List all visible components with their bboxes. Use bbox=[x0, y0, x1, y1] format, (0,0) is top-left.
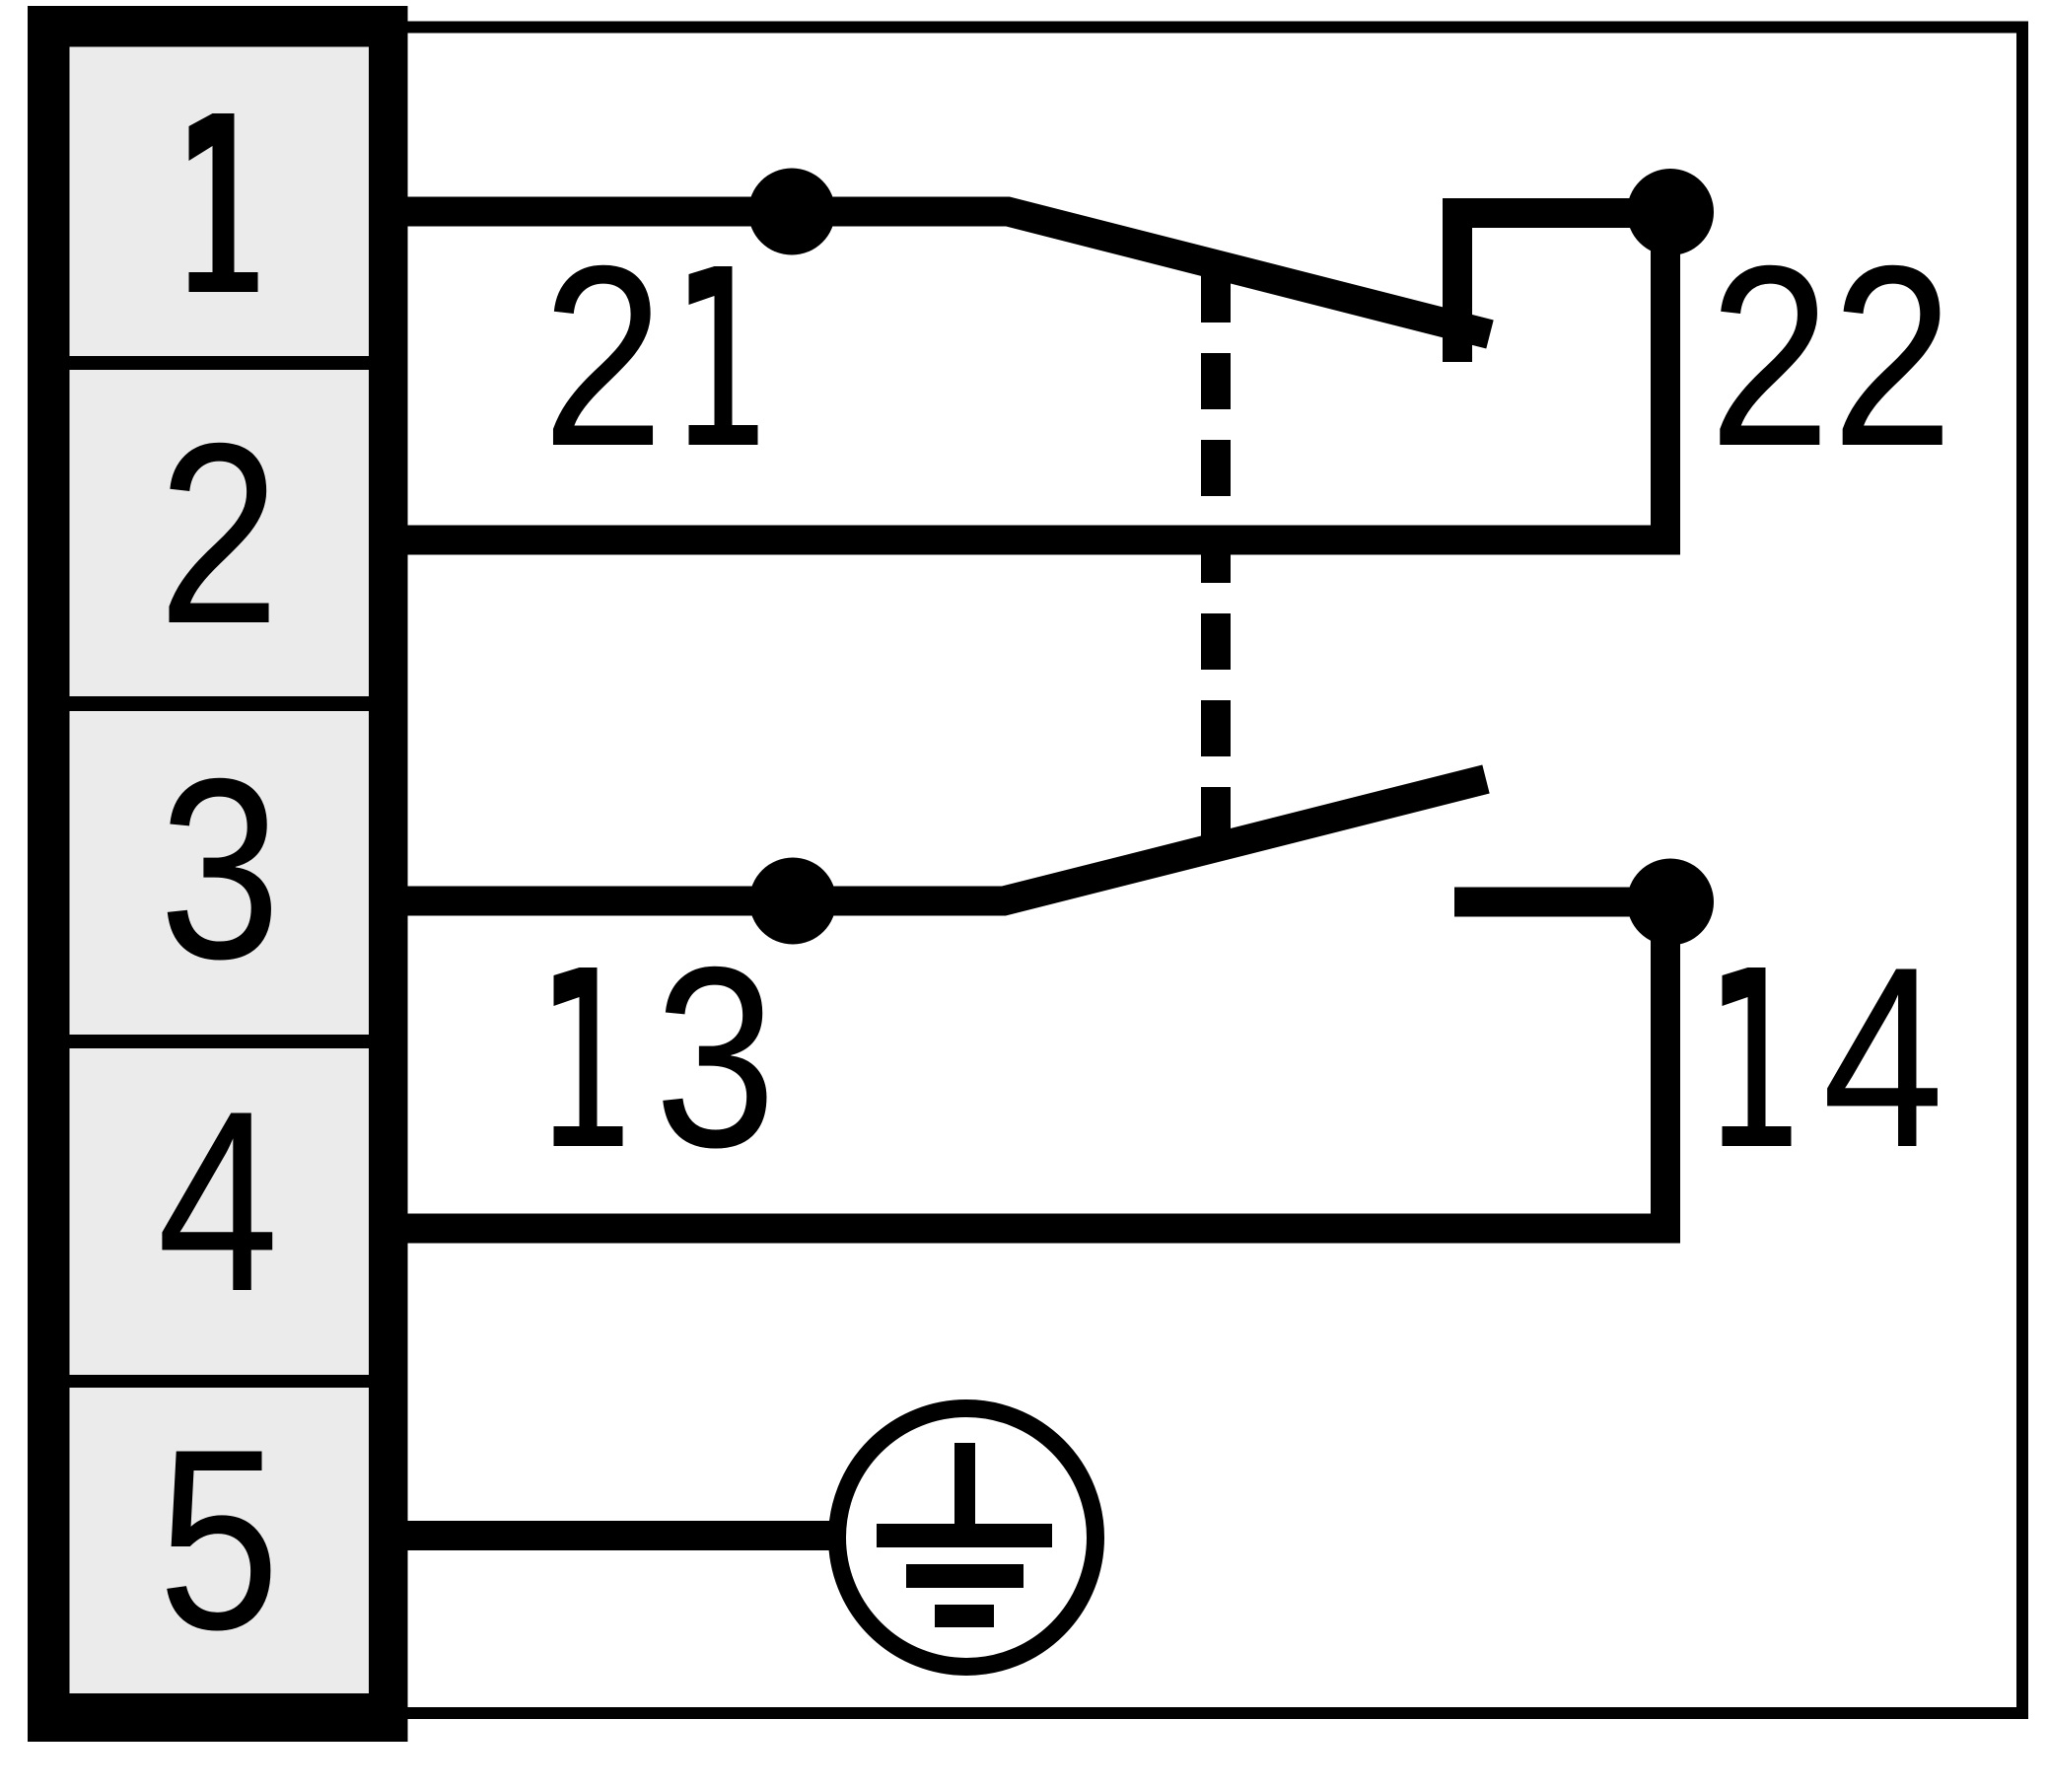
svg-text:2: 2 bbox=[1832, 213, 1953, 500]
svg-text:3: 3 bbox=[655, 914, 776, 1201]
svg-text:4: 4 bbox=[1822, 914, 1943, 1201]
svg-text:3: 3 bbox=[159, 726, 280, 1013]
svg-text:5: 5 bbox=[158, 1397, 279, 1684]
svg-text:4: 4 bbox=[157, 1058, 278, 1345]
svg-text:2: 2 bbox=[542, 213, 664, 500]
svg-text:2: 2 bbox=[1709, 213, 1830, 500]
svg-text:2: 2 bbox=[158, 391, 279, 678]
